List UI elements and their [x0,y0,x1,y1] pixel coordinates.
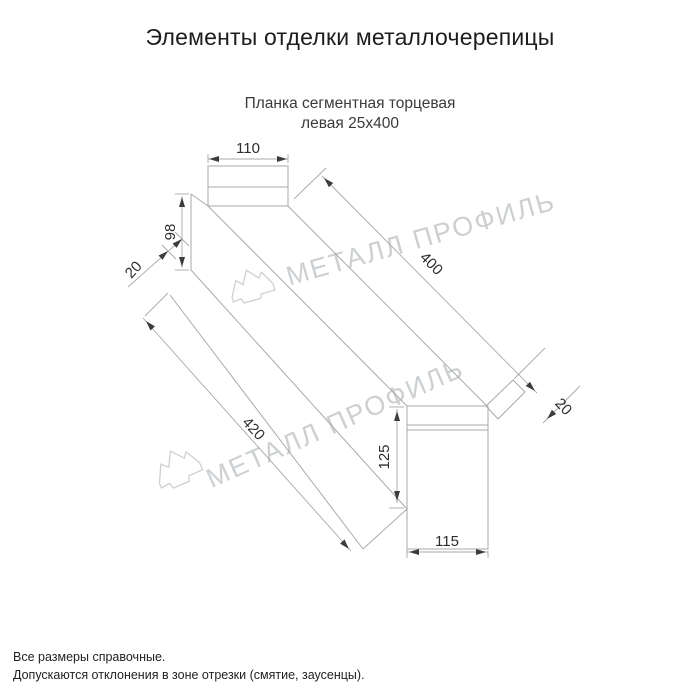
right-end-section [407,406,488,549]
dim-length-value: 400 [416,249,446,279]
footer-note-1: Все размеры справочные. [13,649,365,667]
technical-drawing: 110 98 20 400 20 420 [0,0,700,700]
dim-left-end-height-value: 98 [162,224,179,241]
flange-end-edge [363,509,407,549]
dim-end-height: 125 [376,407,404,508]
left-fold-edge [191,194,208,206]
right-fold-flap [486,380,525,419]
dim-cap-width-value: 110 [236,140,260,157]
footer-notes: Все размеры справочные. Допускаются откл… [13,649,365,684]
dim-right-fold-value: 20 [551,395,575,419]
footer-note-2: Допускаются отклонения в зоне отрезки (с… [13,667,365,685]
part-outline [170,166,525,549]
dim-cap-width: 110 [208,140,288,163]
dim-left-fold-value: 20 [122,258,146,282]
dim-end-height-value: 125 [376,444,393,469]
left-cap-rect [208,166,288,206]
dim-length: 400 [294,168,545,393]
dim-right-fold: 20 [543,386,580,423]
dim-end-width: 115 [407,533,488,558]
strip-top-edge [288,206,487,406]
dim-end-width-value: 115 [435,533,459,550]
strip-crease-edge [208,206,407,406]
strip-lower-edge [191,270,407,509]
